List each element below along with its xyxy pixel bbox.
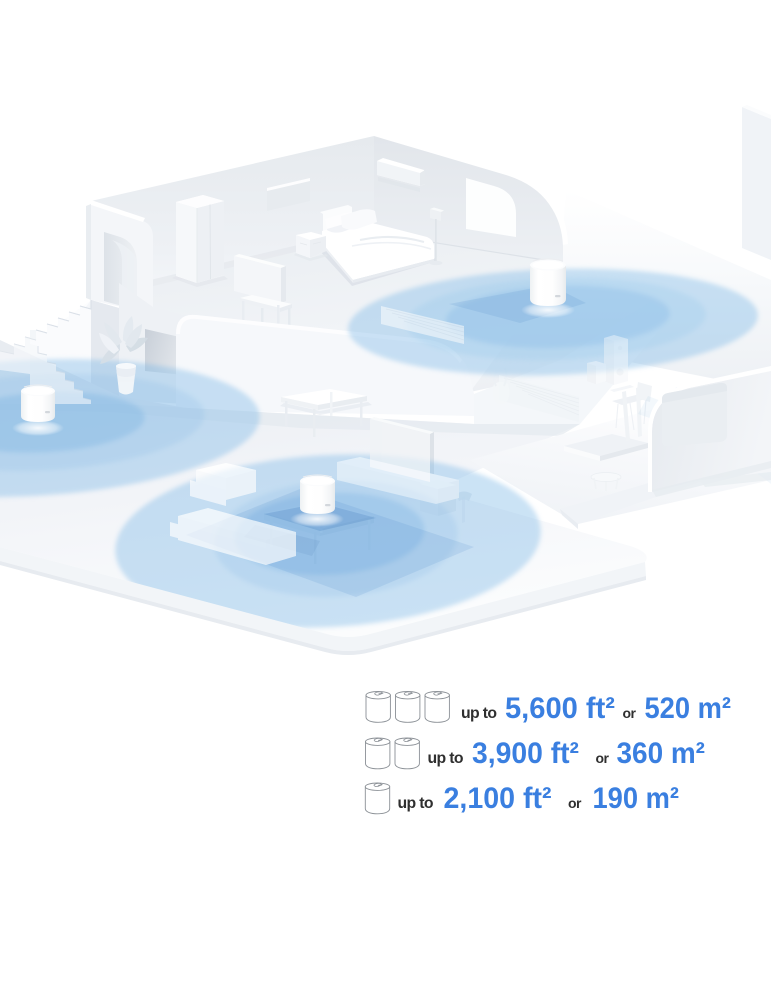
svg-text:or: or <box>623 705 637 721</box>
svg-text:or: or <box>568 795 582 811</box>
svg-text:or: or <box>596 750 610 766</box>
svg-text:3,900 ft²: 3,900 ft² <box>472 737 579 770</box>
svg-text:520 m²: 520 m² <box>645 692 732 725</box>
svg-text:up to: up to <box>428 750 464 767</box>
svg-text:2,100 ft²: 2,100 ft² <box>444 782 552 815</box>
svg-text:up to: up to <box>461 705 497 722</box>
svg-text:5,600 ft²: 5,600 ft² <box>505 692 615 725</box>
svg-text:up to: up to <box>398 795 434 812</box>
svg-text:360 m²: 360 m² <box>617 737 706 770</box>
svg-text:190 m²: 190 m² <box>593 782 680 815</box>
